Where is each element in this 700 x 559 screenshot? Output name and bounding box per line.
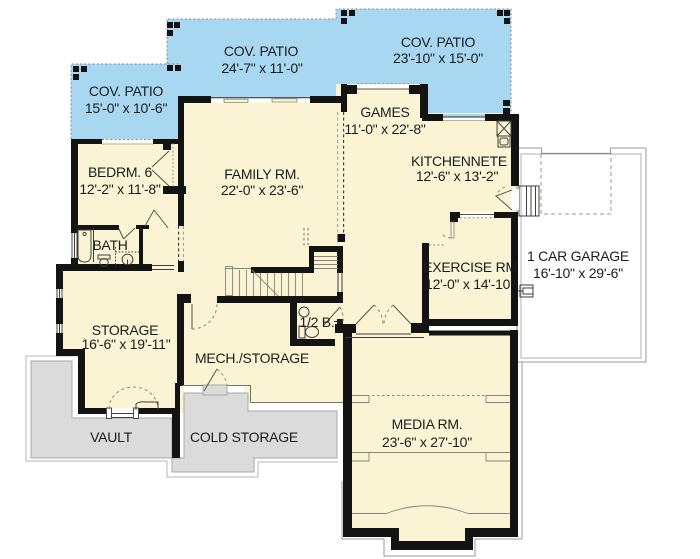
- svg-text:COLD STORAGE: COLD STORAGE: [190, 429, 298, 445]
- svg-text:15'-0" x 10'-6": 15'-0" x 10'-6": [85, 100, 168, 116]
- svg-text:COV. PATIO: COV. PATIO: [401, 34, 476, 50]
- svg-text:COV. PATIO: COV. PATIO: [224, 43, 299, 59]
- svg-text:11'-0" x 22'-8": 11'-0" x 22'-8": [344, 121, 426, 137]
- svg-text:12'-6" x 13'-2": 12'-6" x 13'-2": [416, 168, 499, 184]
- svg-text:COV. PATIO: COV. PATIO: [89, 83, 164, 99]
- svg-text:VAULT: VAULT: [90, 429, 132, 445]
- svg-text:12'-2" x 11'-8": 12'-2" x 11'-8": [79, 181, 161, 197]
- svg-text:23'-10" x 15'-0": 23'-10" x 15'-0": [393, 50, 483, 66]
- svg-text:1 CAR GARAGE: 1 CAR GARAGE: [527, 248, 629, 264]
- svg-text:23'-6" x 27'-10": 23'-6" x 27'-10": [382, 434, 472, 450]
- svg-text:22'-0" x 23'-6": 22'-0" x 23'-6": [221, 182, 304, 198]
- svg-text:24'-7" x 11'-0": 24'-7" x 11'-0": [221, 60, 303, 76]
- svg-text:1/2 B.: 1/2 B.: [299, 314, 334, 330]
- svg-text:EXERCISE RM: EXERCISE RM: [423, 259, 517, 275]
- svg-text:16'-6" x 19'-11": 16'-6" x 19'-11": [82, 336, 171, 352]
- svg-text:BATH: BATH: [92, 237, 127, 253]
- svg-text:16'-10" x 29'-6": 16'-10" x 29'-6": [533, 265, 623, 281]
- svg-text:KITCHENNETE: KITCHENNETE: [411, 153, 507, 169]
- svg-text:GAMES: GAMES: [360, 104, 409, 120]
- svg-text:FAMILY RM.: FAMILY RM.: [224, 166, 300, 182]
- svg-text:MECH./STORAGE: MECH./STORAGE: [195, 350, 309, 366]
- svg-text:MEDIA RM.: MEDIA RM.: [392, 416, 463, 432]
- svg-text:BEDRM. 6: BEDRM. 6: [88, 164, 153, 180]
- svg-text:12'-0" x 14'-10": 12'-0" x 14'-10": [425, 276, 515, 292]
